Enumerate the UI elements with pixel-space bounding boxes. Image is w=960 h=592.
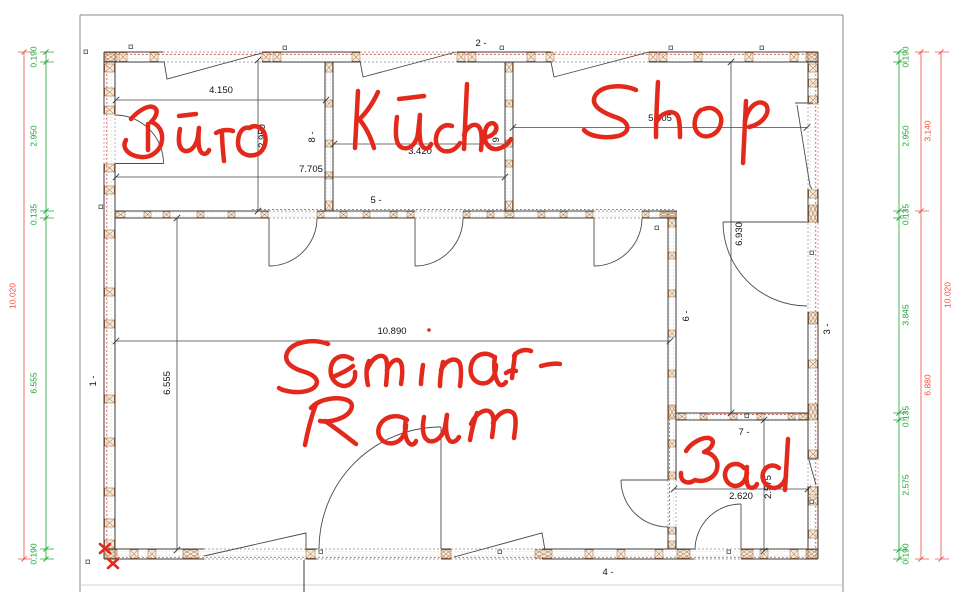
svg-text:1 -: 1 - [88,375,99,386]
svg-text:2 -: 2 - [475,38,486,49]
svg-text:0.135: 0.135 [901,204,911,226]
svg-text:3.140: 3.140 [923,120,933,142]
svg-text:6.930: 6.930 [734,222,745,246]
svg-text:10.020: 10.020 [943,282,953,308]
svg-text:2.575: 2.575 [901,474,911,496]
svg-text:10.890: 10.890 [377,326,406,337]
svg-text:4 -: 4 - [602,567,613,578]
svg-text:6 -: 6 - [681,310,692,321]
svg-text:3 -: 3 - [822,323,833,334]
svg-text:8 -: 8 - [307,131,318,142]
svg-text:2.620: 2.620 [729,491,753,502]
svg-text:0.190: 0.190 [29,543,39,565]
svg-text:2.950: 2.950 [29,125,39,147]
svg-text:0.190: 0.190 [901,46,911,68]
svg-text:0.190: 0.190 [901,543,911,565]
svg-text:6.555: 6.555 [162,371,173,395]
svg-text:6.880: 6.880 [923,374,933,396]
svg-text:10.020: 10.020 [8,283,18,309]
svg-text:7 -: 7 - [738,427,749,438]
svg-text:0.135: 0.135 [901,406,911,428]
svg-text:2.950: 2.950 [901,125,911,147]
svg-text:7.705: 7.705 [299,164,323,175]
svg-text:5 -: 5 - [370,195,381,206]
svg-text:6.555: 6.555 [29,372,39,394]
svg-text:3.845: 3.845 [901,304,911,326]
svg-text:4.150: 4.150 [209,85,233,96]
svg-text:0.135: 0.135 [29,204,39,226]
svg-text:0.190: 0.190 [29,46,39,68]
